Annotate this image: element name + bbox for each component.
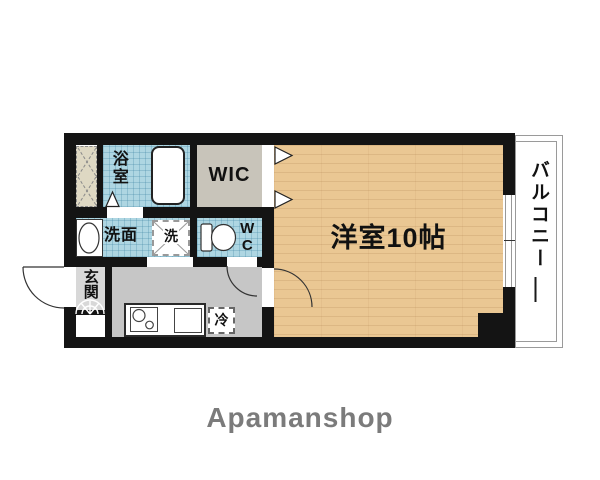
pipe-space-hatch [78,148,96,176]
washroom-label: 洗面 [104,228,138,245]
bathroom-label: 浴室 [109,150,126,208]
toilet-bowl [212,225,236,251]
floor-plan: 浴室 WIC 洗面 洗 WC 玄関 洋室10帖 バルコニー 冷 Apamansh… [0,0,600,480]
toilet-tank [201,224,212,251]
wc-door-arc [227,266,257,296]
pipe-space-hatch [78,177,96,205]
brand-logo: Apamanshop [0,402,600,434]
mainroom-door-arc [274,269,312,307]
vanity-basin [79,223,99,253]
stove-burner-small [146,321,154,329]
main-room-label: 洋室10帖 [274,224,503,252]
wc-label: WC [239,220,255,258]
wic-folding-door-triangle [275,191,292,208]
wic-label: WIC [197,165,262,186]
balcony-label: バルコニー [528,160,548,350]
entrance-label: 玄関 [82,269,98,315]
fridge-label: 冷 [208,313,235,328]
entrance-door-arc [23,267,64,308]
stove-burner-large [133,310,145,322]
wic-folding-door-triangle [275,147,292,164]
washer-label: 洗 [163,229,179,244]
